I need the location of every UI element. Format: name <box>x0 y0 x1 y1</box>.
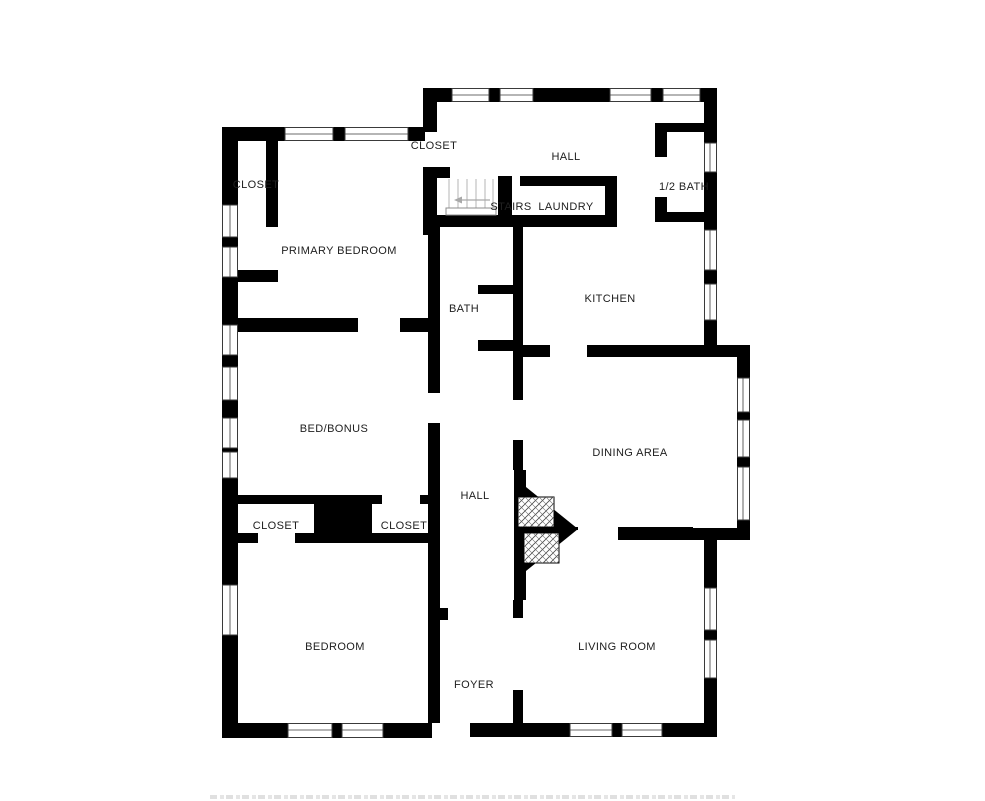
room-label-foyer: FOYER <box>454 679 494 691</box>
room-label-dining-area: DINING AREA <box>592 447 668 459</box>
floor-plan-drawing: CLOSETCLOSETHALL1/2 BATHSTAIRSLAUNDRYPRI… <box>0 0 985 801</box>
room-label-closet-right: CLOSET <box>381 520 427 532</box>
room-label-bedroom: BEDROOM <box>305 641 365 653</box>
floor-plan: CLOSETCLOSETHALL1/2 BATHSTAIRSLAUNDRYPRI… <box>0 0 985 801</box>
room-label-hall-upper: HALL <box>551 151 580 163</box>
room-label-hall-lower: HALL <box>460 490 489 502</box>
room-label-half-bath: 1/2 BATH <box>659 181 709 193</box>
room-label-primary-bedroom: PRIMARY BEDROOM <box>281 245 397 257</box>
room-label-closet-hall: CLOSET <box>411 140 457 152</box>
room-label-bath: BATH <box>449 303 479 315</box>
room-label-laundry: LAUNDRY <box>538 201 593 213</box>
stairs-landing <box>446 208 496 215</box>
room-label-closet-primary: CLOSET <box>233 179 279 191</box>
fireplace <box>514 470 578 600</box>
truncated-footer-text <box>210 795 735 799</box>
room-label-living-room: LIVING ROOM <box>578 641 656 653</box>
room-label-closet-left: CLOSET <box>253 520 299 532</box>
room-label-kitchen: KITCHEN <box>584 293 635 305</box>
room-label-bed-bonus: BED/BONUS <box>300 423 368 435</box>
room-label-stairs: STAIRS <box>490 201 531 213</box>
